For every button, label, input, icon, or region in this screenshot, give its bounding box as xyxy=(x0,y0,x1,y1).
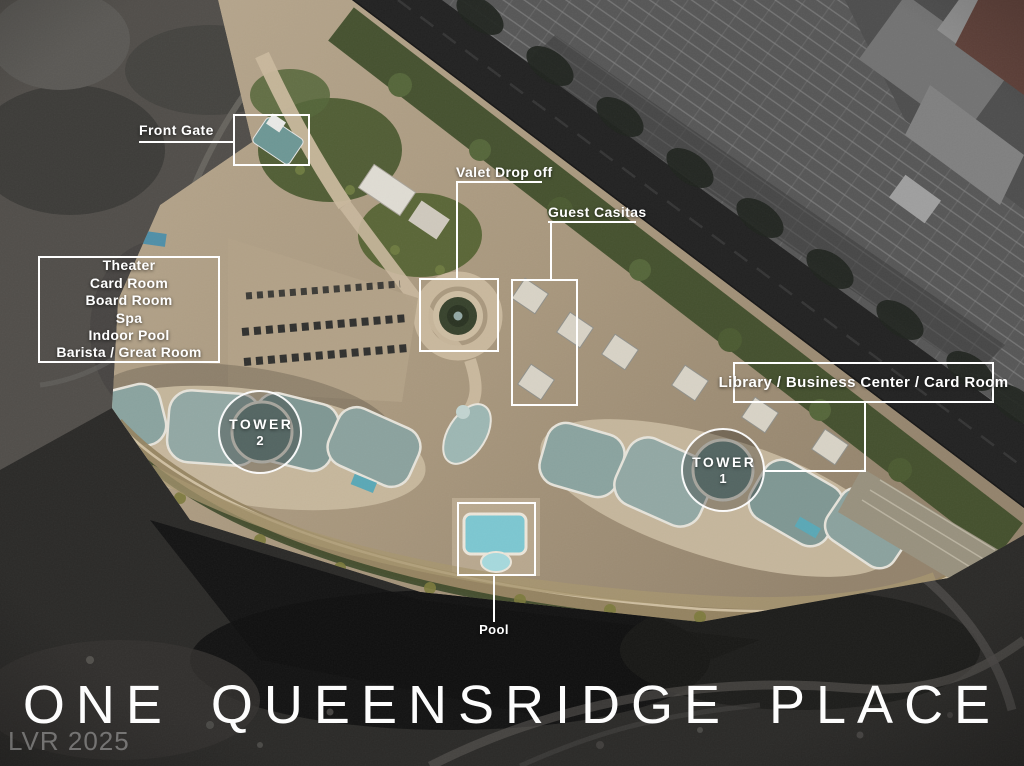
valet-underline xyxy=(456,181,542,183)
watermark: LVR 2025 xyxy=(8,726,130,757)
guest-casitas-label: Guest Casitas xyxy=(548,204,647,220)
front-gate-label: Front Gate xyxy=(139,122,214,138)
guest-casitas-underline xyxy=(548,221,636,223)
pool-label: Pool xyxy=(464,622,524,637)
front-gate-box xyxy=(233,114,310,166)
amenity-indoor-pool: Indoor Pool xyxy=(40,327,218,344)
pool-leader-line xyxy=(493,576,495,622)
amenity-barista-great-room: Barista / Great Room xyxy=(40,344,218,361)
property-title: ONE QUEENSRIDGE PLACE xyxy=(0,674,1024,736)
pool-box xyxy=(457,502,536,576)
valet-leader-line xyxy=(456,181,458,278)
tower-1-name: TOWER xyxy=(690,454,757,470)
valet-drop-off-label: Valet Drop off xyxy=(456,164,553,180)
library-leader-line-vertical xyxy=(864,403,866,472)
amenity-theater: Theater xyxy=(40,257,218,274)
tower-1-marker: TOWER 1 xyxy=(681,428,765,512)
library-box: Library / Business Center / Card Room xyxy=(733,362,994,403)
guest-casitas-leader-line xyxy=(550,221,552,279)
front-gate-leader-line xyxy=(139,141,233,143)
library-label: Library / Business Center / Card Room xyxy=(719,374,1009,391)
aerial-site-map: Front Gate Valet Drop off Guest Casitas … xyxy=(0,0,1024,766)
valet-box xyxy=(419,278,499,352)
tower-2-marker: TOWER 2 xyxy=(218,390,302,474)
amenity-spa: Spa xyxy=(40,310,218,327)
amenity-board-room: Board Room xyxy=(40,292,218,309)
tower-1-number: 1 xyxy=(719,471,726,486)
library-leader-line-horizontal xyxy=(763,470,866,472)
tower-2-name: TOWER xyxy=(227,416,294,432)
tower-2-number: 2 xyxy=(256,433,263,448)
guest-casitas-box xyxy=(511,279,578,406)
amenities-box: Theater Card Room Board Room Spa Indoor … xyxy=(38,256,220,363)
amenity-card-room: Card Room xyxy=(40,275,218,292)
